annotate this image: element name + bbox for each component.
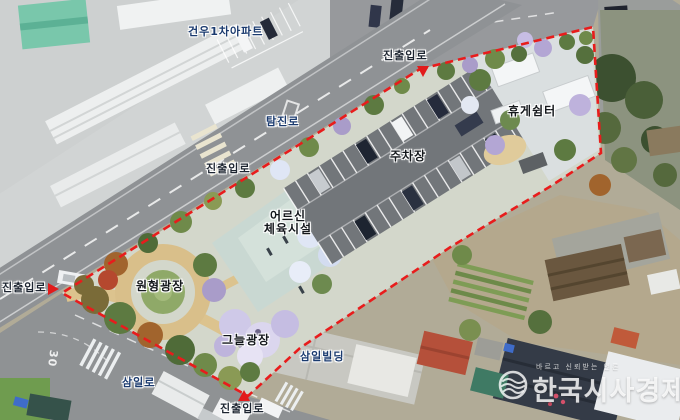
aerial-site-plan-image: 건우1차아파트 진출입로 탐진로 진출입로 휴게쉼터 주차장 어르신 체육시설 … [0,0,680,420]
label-shade-plaza: 그늘광장 [222,334,270,347]
label-entrance-mid: 진출입로 [206,162,250,175]
entrance-arrow-bottom-icon [238,390,250,401]
teal-roof-building [18,0,90,49]
label-senior-line2: 체육시설 [254,223,322,236]
label-apartment: 건우1차아파트 [188,25,263,38]
entrance-arrow-top-icon [417,66,429,77]
entrance-arrow-left-icon [48,283,59,295]
label-entrance-bottom: 진출입로 [220,402,264,415]
label-parking: 주차장 [390,150,426,163]
label-samil-building: 삼일빌딩 [300,350,344,363]
label-senior-facility: 어르신 체육시설 [254,210,322,236]
label-rest-shelter: 휴게쉼터 [508,105,556,118]
watermark: 바르고 신뢰받는 언론 한국시사경제 [494,358,680,406]
press-globe-logo-icon [497,369,529,401]
label-samil-road: 삼일로 [122,376,155,389]
label-tamjin-road: 탐진로 [266,115,299,128]
label-entrance-top: 진출입로 [383,49,427,62]
label-circle-plaza: 원형광장 [136,280,184,293]
watermark-name: 한국시사경제 [532,369,680,408]
road-marking-30: 30 [45,349,60,368]
label-entrance-left: 진출입로 [2,281,46,294]
